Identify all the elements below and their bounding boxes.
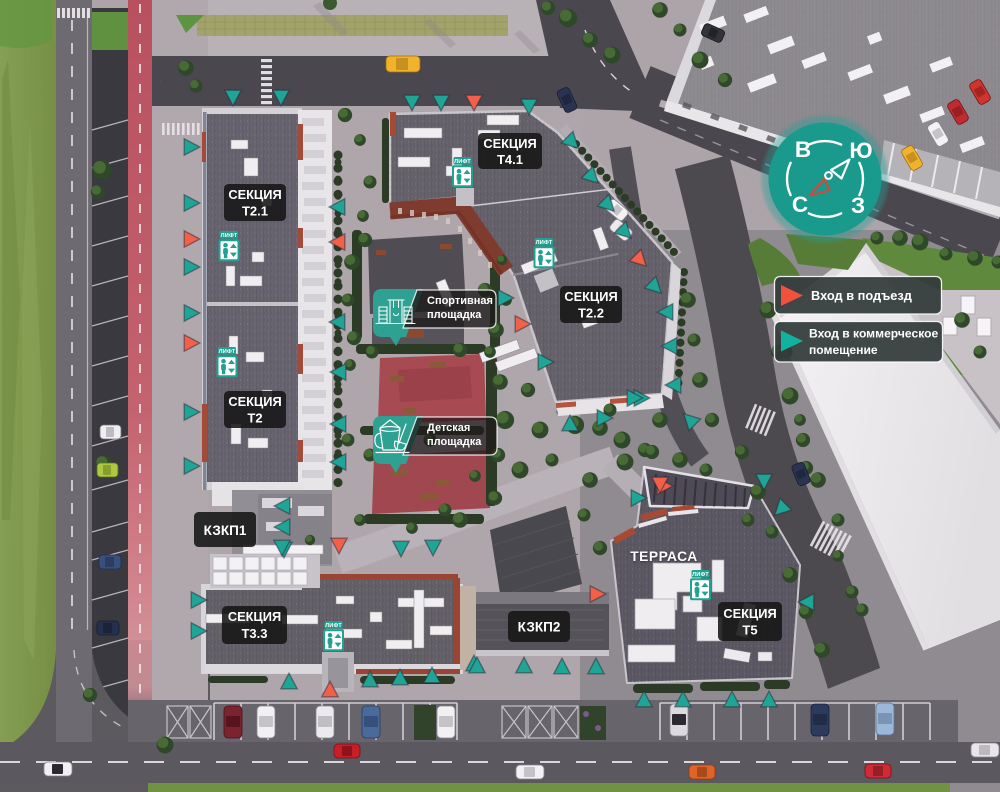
svg-text:Т2: Т2 xyxy=(247,411,262,426)
svg-text:СЕКЦИЯ: СЕКЦИЯ xyxy=(483,136,536,151)
svg-text:З: З xyxy=(851,193,865,218)
svg-text:Детская: Детская xyxy=(427,422,470,434)
svg-text:КЗКП2: КЗКП2 xyxy=(518,620,561,635)
svg-text:Т3.3: Т3.3 xyxy=(241,626,267,641)
svg-text:площадка: площадка xyxy=(427,309,482,321)
svg-text:Т2.2: Т2.2 xyxy=(578,306,604,321)
svg-text:Т2.1: Т2.1 xyxy=(242,204,268,219)
svg-text:СЕКЦИЯ: СЕКЦИЯ xyxy=(228,609,281,624)
svg-text:СЕКЦИЯ: СЕКЦИЯ xyxy=(228,394,281,409)
svg-text:Ю: Ю xyxy=(849,138,872,163)
svg-text:СЕКЦИЯ: СЕКЦИЯ xyxy=(564,289,617,304)
svg-text:В: В xyxy=(795,137,811,162)
svg-text:Т4.1: Т4.1 xyxy=(497,152,523,167)
svg-text:СЕКЦИЯ: СЕКЦИЯ xyxy=(723,606,776,621)
svg-text:помещение: помещение xyxy=(809,343,878,357)
svg-text:КЗКП1: КЗКП1 xyxy=(204,523,247,538)
svg-text:площадка: площадка xyxy=(427,436,482,448)
svg-text:СЕКЦИЯ: СЕКЦИЯ xyxy=(228,187,281,202)
svg-text:Вход в подъезд: Вход в подъезд xyxy=(811,288,912,303)
svg-text:Т5: Т5 xyxy=(742,623,757,638)
svg-text:С: С xyxy=(792,192,808,217)
svg-text:Спортивная: Спортивная xyxy=(427,295,493,307)
svg-text:Вход в коммерческое: Вход в коммерческое xyxy=(809,327,938,341)
svg-text:ТЕРРАСА: ТЕРРАСА xyxy=(630,549,698,564)
